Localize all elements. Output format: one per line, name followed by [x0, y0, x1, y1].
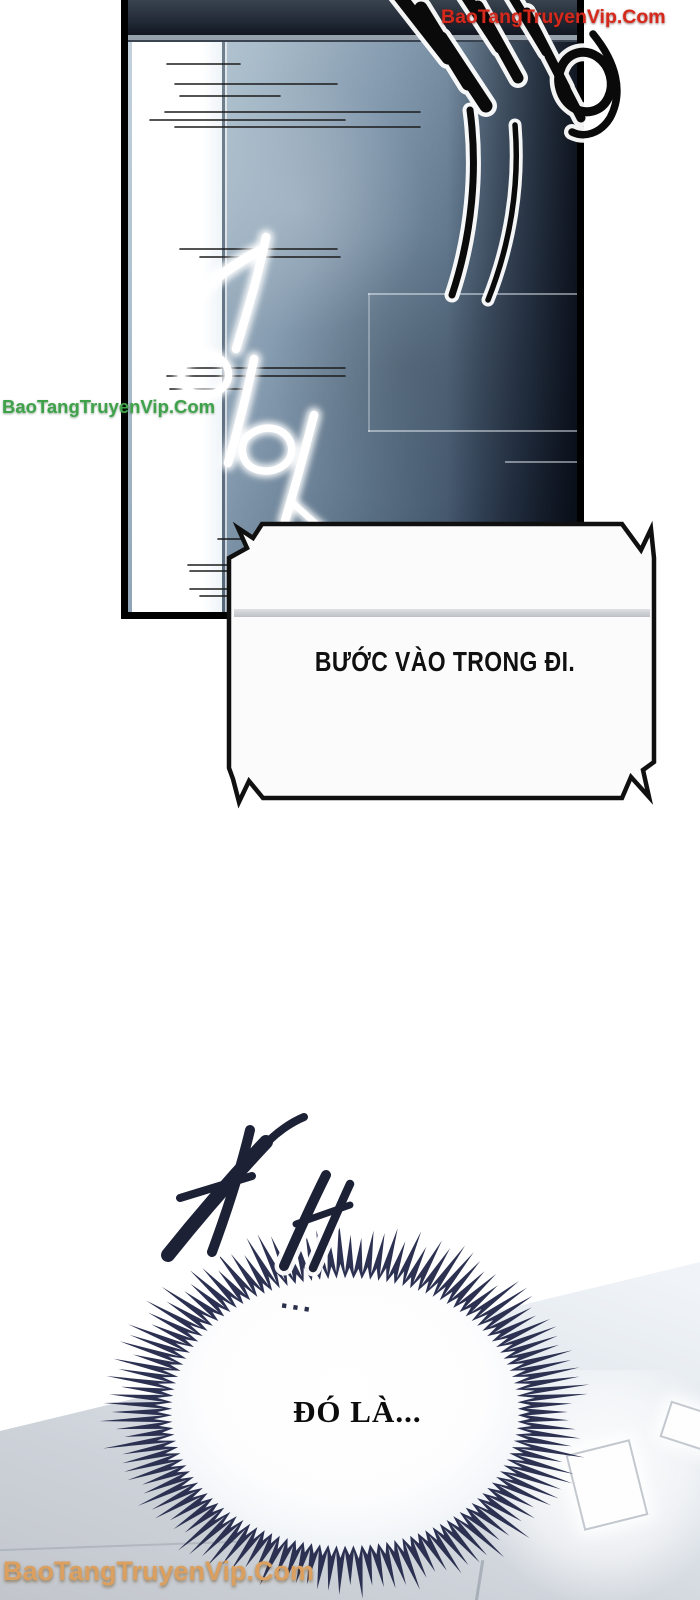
burst-ellipsis: ...: [279, 1282, 318, 1321]
speech-bubble-shade-band: [234, 609, 650, 617]
sfx-impact-calligraphy: [398, 0, 618, 300]
speech-bubble-text: BƯỚC VÀO TRONG ĐI.: [285, 646, 605, 678]
sfx-footsteps-calligraphy: [168, 1117, 350, 1268]
manga-page: BƯỚC VÀO TRONG ĐI. ... ĐÓ LÀ... BaoTangT…: [0, 0, 700, 1600]
burst-bubble-text: ĐÓ LÀ...: [293, 1394, 422, 1430]
overlay-art-layer: [0, 0, 700, 1600]
watermark-top-right: BaoTangTruyenVip.Com: [441, 6, 666, 29]
watermark-left: BaoTangTruyenVip.Com: [2, 396, 215, 418]
watermark-bottom-left: BaoTangTruyenVip.Com: [3, 1556, 314, 1587]
